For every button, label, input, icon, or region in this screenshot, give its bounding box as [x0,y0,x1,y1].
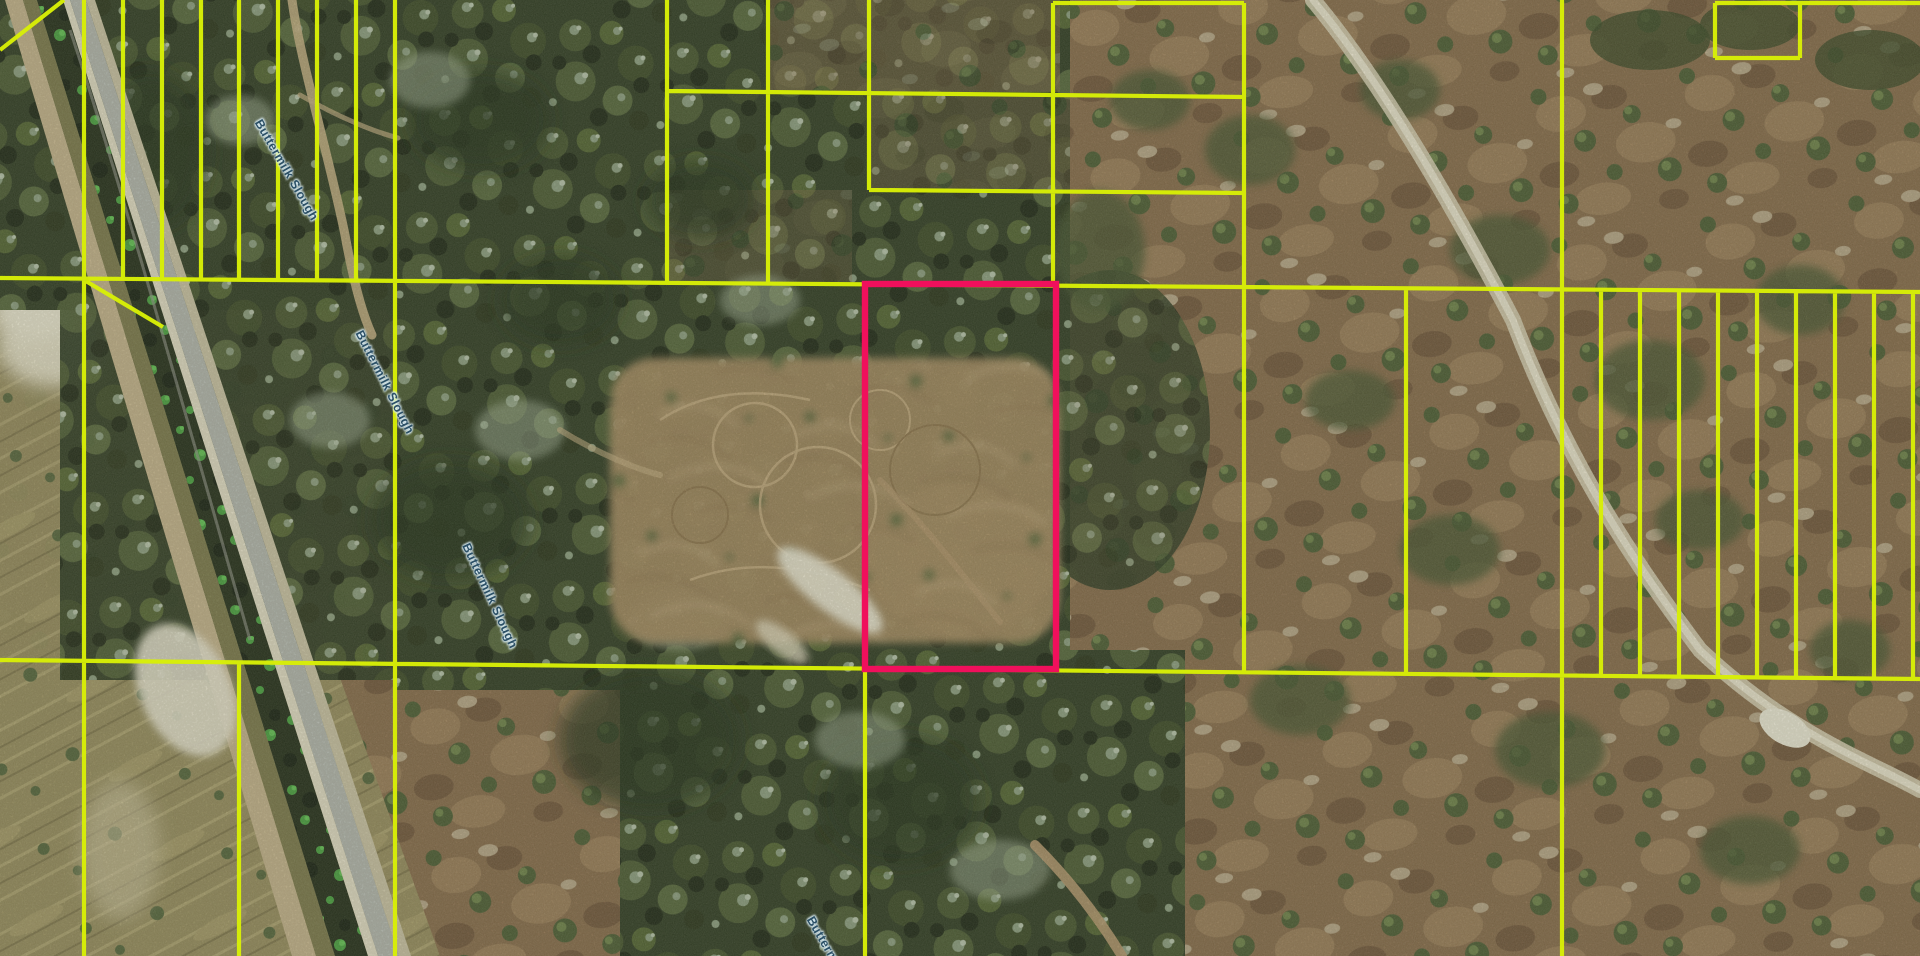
map-canvas[interactable] [0,0,1920,956]
satellite-imagery [0,0,1920,956]
map-viewport[interactable]: Buttermilk Slough Buttermilk Slough Butt… [0,0,1920,956]
